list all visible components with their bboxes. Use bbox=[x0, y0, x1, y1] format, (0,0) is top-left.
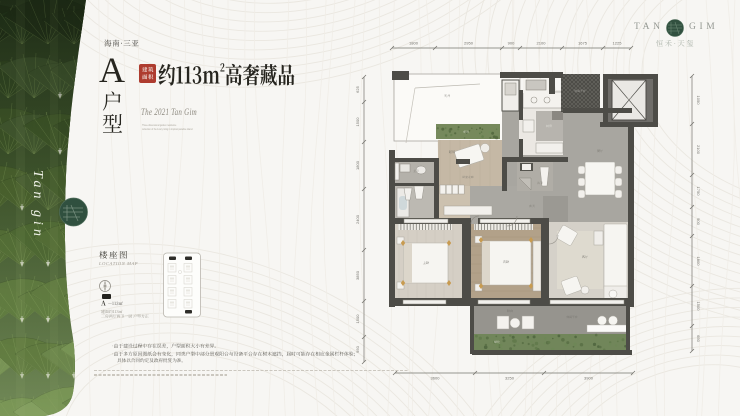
svg-text:2100: 2100 bbox=[696, 145, 701, 155]
svg-text:900: 900 bbox=[508, 41, 515, 46]
svg-text:1050: 1050 bbox=[696, 96, 701, 106]
svg-text:1750: 1750 bbox=[696, 187, 701, 197]
svg-text:2100: 2100 bbox=[537, 41, 547, 46]
svg-text:650: 650 bbox=[696, 335, 701, 342]
svg-text:1800: 1800 bbox=[355, 160, 360, 170]
svg-text:1500: 1500 bbox=[355, 117, 360, 127]
svg-text:625: 625 bbox=[355, 85, 360, 92]
svg-text:1800: 1800 bbox=[696, 257, 701, 267]
svg-text:3600: 3600 bbox=[431, 376, 441, 381]
svg-text:1225: 1225 bbox=[613, 41, 623, 46]
svg-text:3850: 3850 bbox=[355, 270, 360, 280]
svg-text:1800: 1800 bbox=[409, 41, 419, 46]
svg-text:2400: 2400 bbox=[355, 214, 360, 224]
svg-text:950: 950 bbox=[355, 345, 360, 352]
svg-text:900: 900 bbox=[696, 218, 701, 225]
svg-text:1500: 1500 bbox=[355, 314, 360, 324]
svg-text:3250: 3250 bbox=[505, 376, 515, 381]
svg-text:3900: 3900 bbox=[584, 376, 594, 381]
svg-text:1675: 1675 bbox=[578, 41, 588, 46]
svg-text:1500: 1500 bbox=[696, 302, 701, 312]
svg-text:2950: 2950 bbox=[464, 41, 474, 46]
